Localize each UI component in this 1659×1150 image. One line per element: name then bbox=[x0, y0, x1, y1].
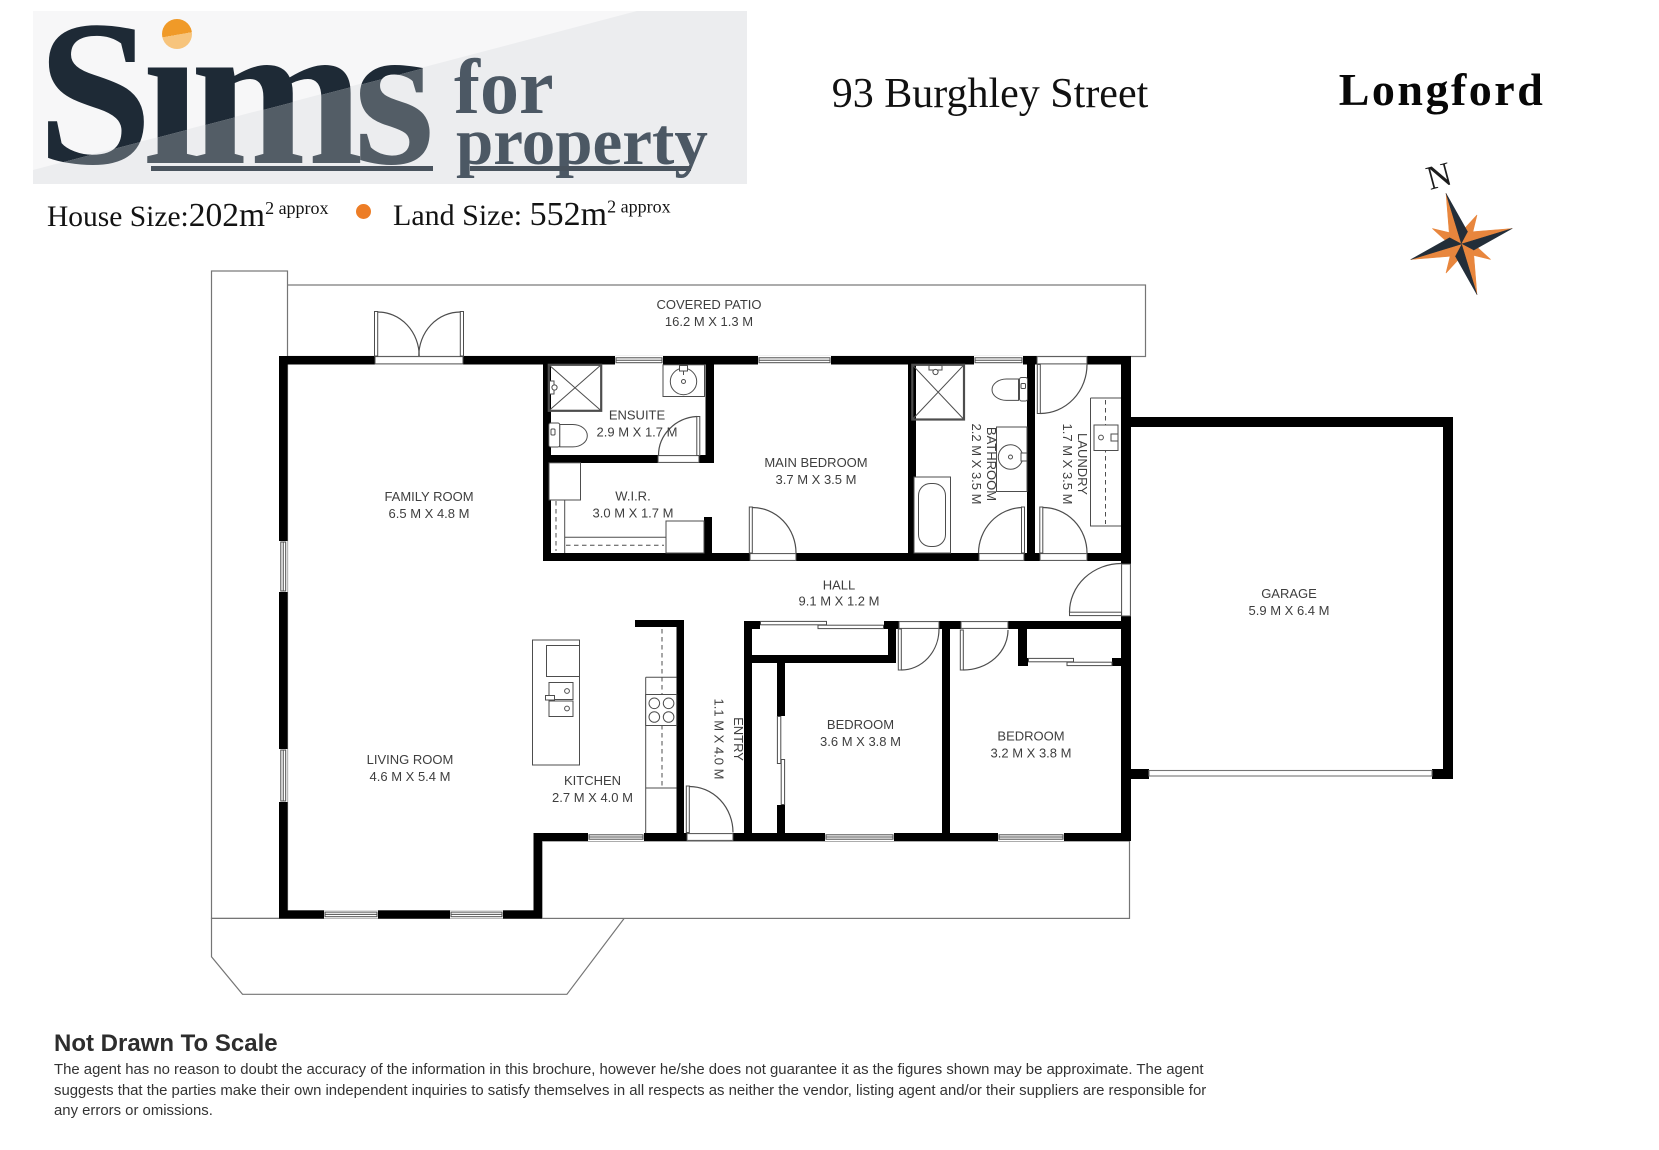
svg-text:ENSUITE: ENSUITE bbox=[609, 408, 666, 423]
svg-text:3.0 M X 1.7 M: 3.0 M X 1.7 M bbox=[593, 506, 674, 521]
svg-text:3.7 M X 3.5 M: 3.7 M X 3.5 M bbox=[776, 472, 857, 487]
svg-text:BATHROOM: BATHROOM bbox=[984, 427, 999, 501]
svg-text:1.1 M X 4.0 M: 1.1 M X 4.0 M bbox=[712, 699, 727, 780]
svg-text:ENTRY: ENTRY bbox=[731, 717, 746, 761]
svg-text:MAIN BEDROOM: MAIN BEDROOM bbox=[764, 455, 867, 470]
svg-text:9.1 M X 1.2 M: 9.1 M X 1.2 M bbox=[799, 594, 880, 609]
svg-text:16.2 M X 1.3 M: 16.2 M X 1.3 M bbox=[665, 314, 753, 329]
svg-text:2.2 M X 3.5 M: 2.2 M X 3.5 M bbox=[969, 424, 984, 505]
svg-text:W.I.R.: W.I.R. bbox=[615, 489, 650, 504]
svg-text:2.9 M X 1.7 M: 2.9 M X 1.7 M bbox=[597, 425, 678, 440]
svg-text:HALL: HALL bbox=[823, 578, 856, 593]
svg-text:GARAGE: GARAGE bbox=[1261, 586, 1317, 601]
svg-text:5.9 M X 6.4 M: 5.9 M X 6.4 M bbox=[1249, 603, 1330, 618]
svg-text:BEDROOM: BEDROOM bbox=[827, 717, 894, 732]
svg-text:6.5 M X 4.8 M: 6.5 M X 4.8 M bbox=[389, 506, 470, 521]
svg-text:COVERED PATIO: COVERED PATIO bbox=[657, 297, 762, 312]
svg-text:3.2 M X 3.8 M: 3.2 M X 3.8 M bbox=[991, 746, 1072, 761]
svg-text:LAUNDRY: LAUNDRY bbox=[1075, 433, 1090, 495]
svg-text:4.6 M X 5.4 M: 4.6 M X 5.4 M bbox=[370, 769, 451, 784]
svg-text:KITCHEN: KITCHEN bbox=[564, 773, 621, 788]
svg-text:3.6 M X 3.8 M: 3.6 M X 3.8 M bbox=[820, 734, 901, 749]
svg-text:BEDROOM: BEDROOM bbox=[997, 729, 1064, 744]
svg-text:2.7 M X 4.0 M: 2.7 M X 4.0 M bbox=[552, 790, 633, 805]
svg-text:LIVING ROOM: LIVING ROOM bbox=[367, 752, 454, 767]
svg-text:1.7 M X 3.5 M: 1.7 M X 3.5 M bbox=[1060, 424, 1075, 505]
svg-text:FAMILY ROOM: FAMILY ROOM bbox=[384, 489, 473, 504]
